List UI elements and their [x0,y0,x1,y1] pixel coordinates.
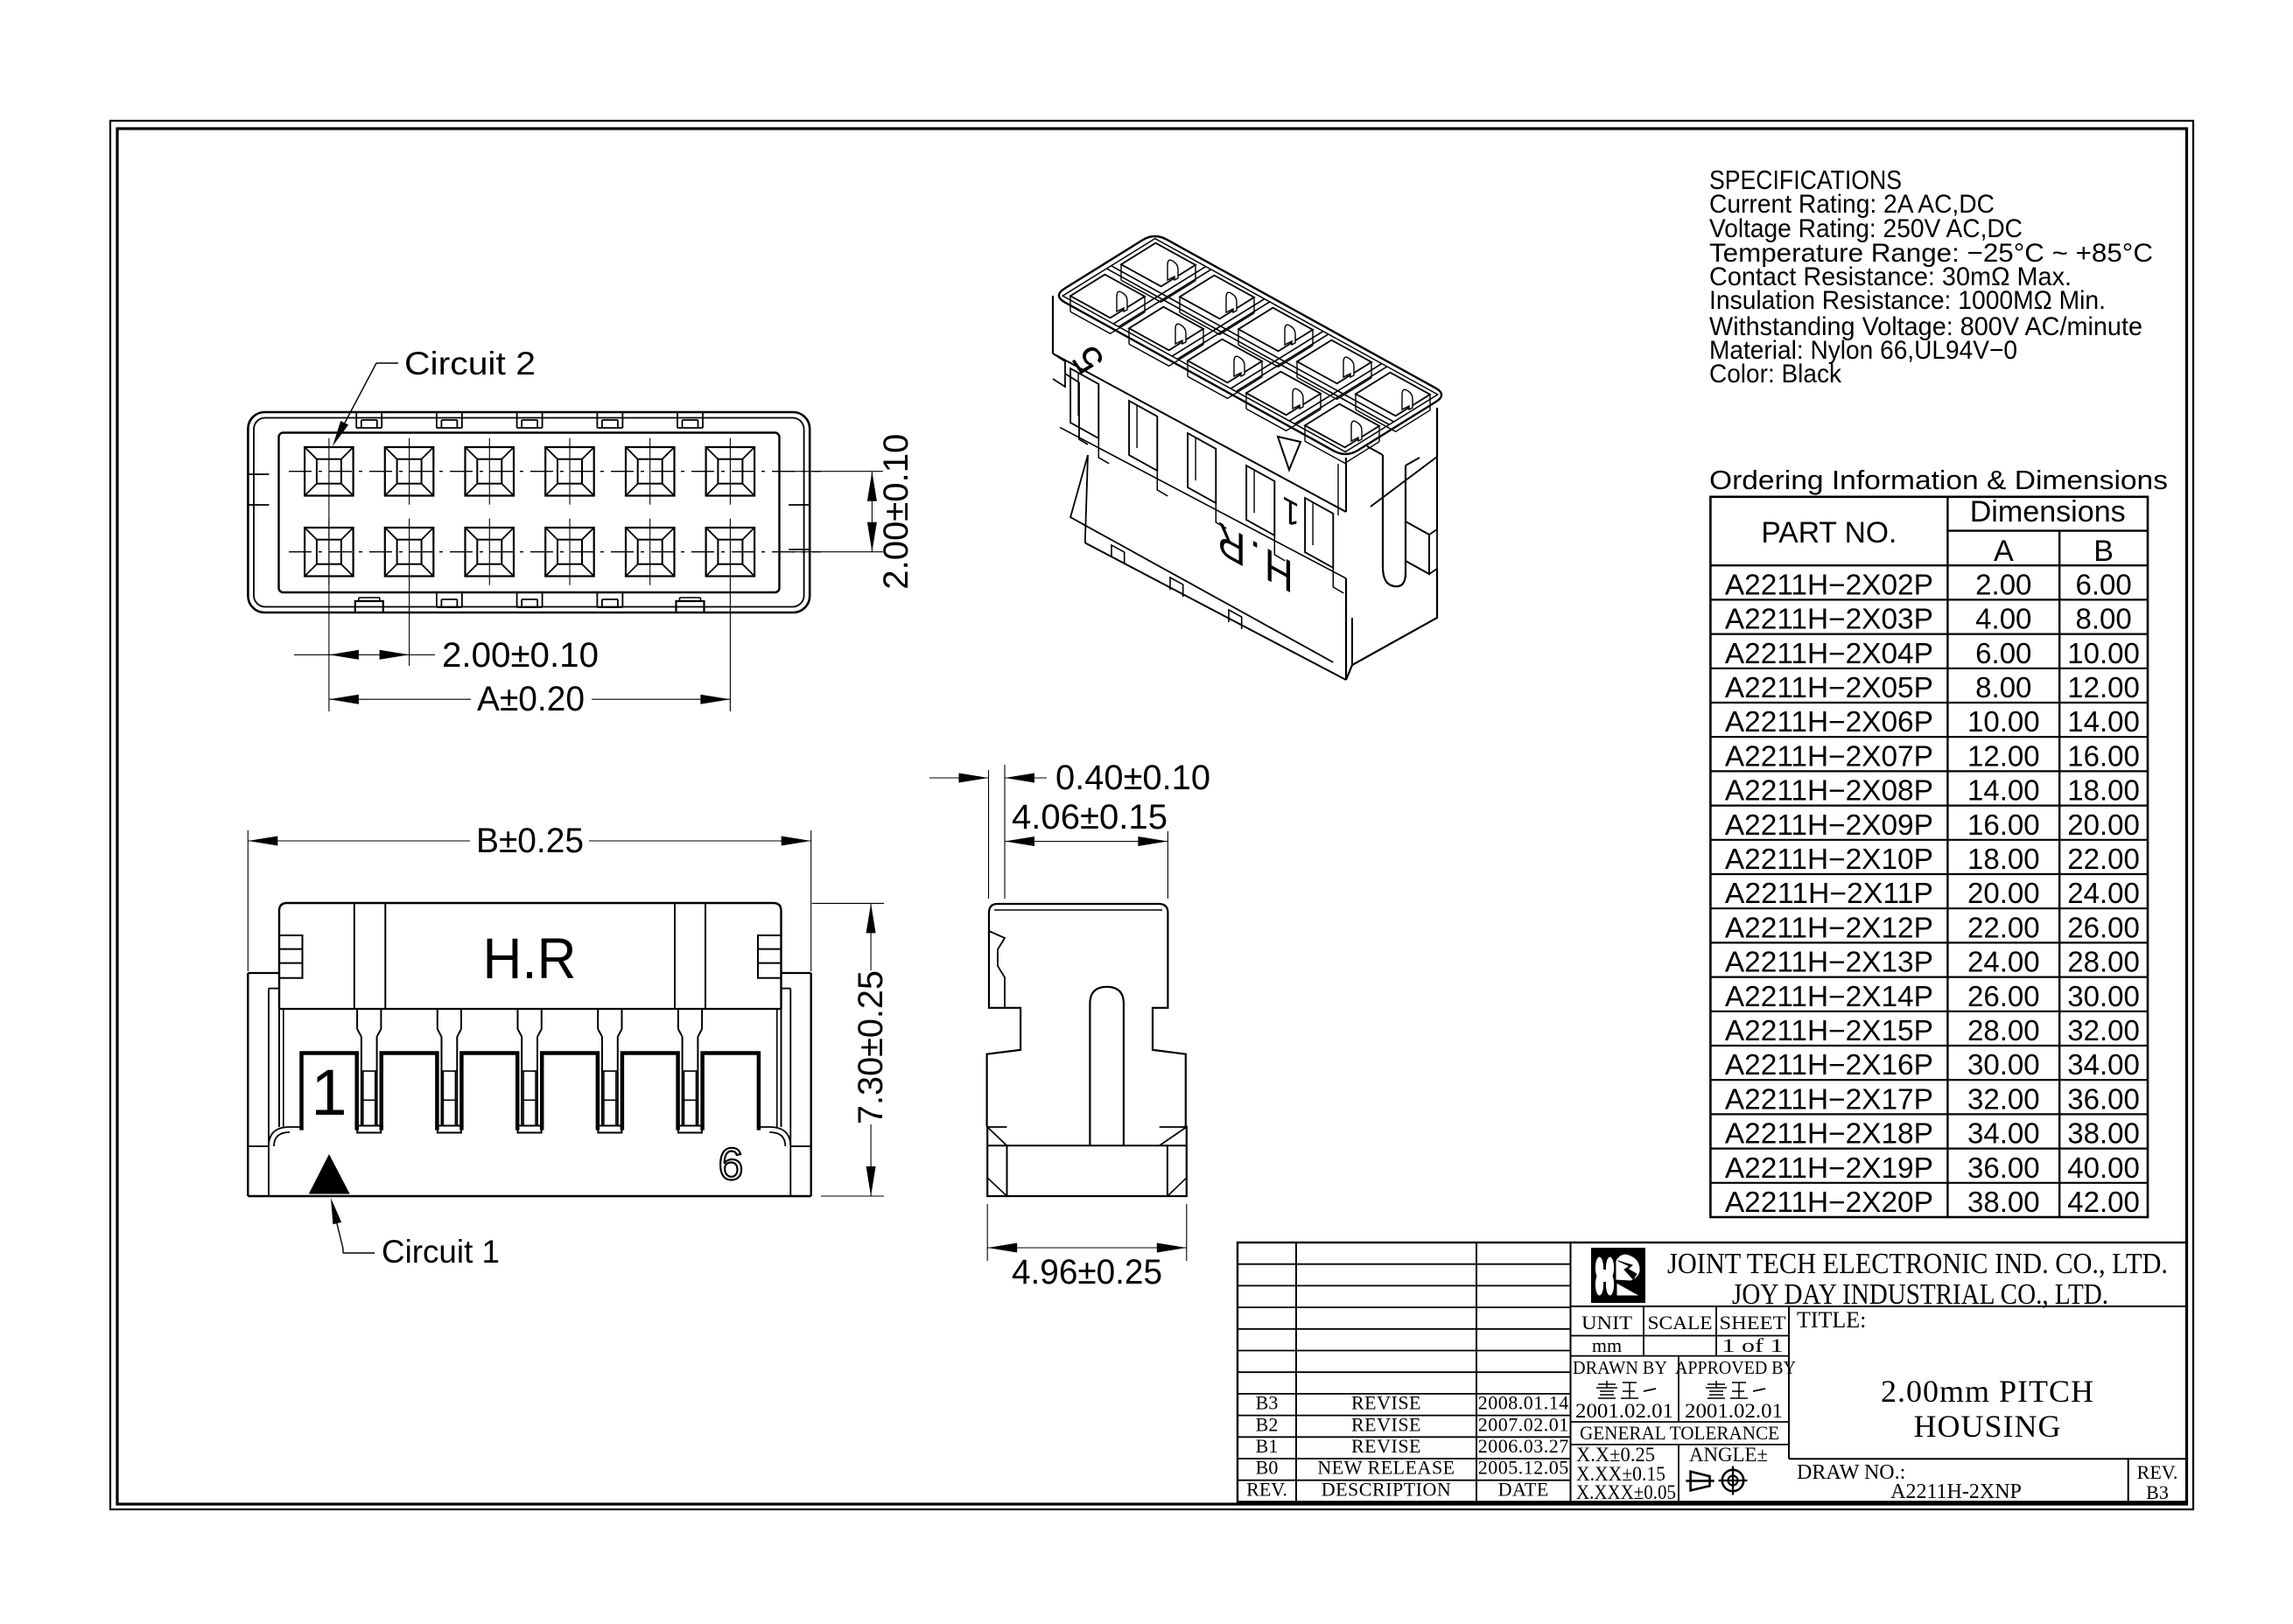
svg-text:7.30±0.25: 7.30±0.25 [852,970,890,1124]
svg-text:A2211H−2X06P: A2211H−2X06P [1725,705,1933,738]
svg-text:2.00±0.10: 2.00±0.10 [877,434,915,590]
svg-text:8.00: 8.00 [2075,603,2131,635]
svg-text:2001.02.01: 2001.02.01 [1685,1400,1783,1422]
svg-text:B3: B3 [2146,1481,2169,1503]
svg-text:4.00: 4.00 [1975,603,2031,635]
svg-text:Circuit 1: Circuit 1 [382,1234,500,1270]
svg-text:18.00: 18.00 [2067,774,2140,807]
svg-text:12.00: 12.00 [1967,739,2040,772]
svg-text:24.00: 24.00 [1967,946,2040,978]
svg-text:12.00: 12.00 [2067,671,2140,703]
svg-text:22.00: 22.00 [1967,911,2040,943]
svg-text:A2211H−2X20P: A2211H−2X20P [1725,1186,1933,1218]
svg-text:22.00: 22.00 [2067,843,2140,875]
svg-text:36.00: 36.00 [2067,1082,2140,1115]
svg-text:A2211H−2X19P: A2211H−2X19P [1725,1151,1933,1184]
svg-text:2.00: 2.00 [1975,568,2031,600]
svg-text:A2211H−2X14P: A2211H−2X14P [1725,980,1933,1012]
svg-text:2.00±0.10: 2.00±0.10 [442,636,599,675]
svg-text:DATE: DATE [1498,1478,1549,1500]
svg-text:30.00: 30.00 [1967,1048,2040,1081]
svg-text:A2211H−2X04P: A2211H−2X04P [1725,637,1933,669]
svg-text:SHEET: SHEET [1720,1312,1787,1333]
svg-text:GENERAL TOLERANCE: GENERAL TOLERANCE [1580,1422,1779,1444]
svg-text:4.96±0.25: 4.96±0.25 [1012,1253,1162,1291]
svg-text:X.XXX±0.05: X.XXX±0.05 [1576,1481,1676,1503]
svg-text:A2211H−2X16P: A2211H−2X16P [1725,1048,1933,1081]
svg-text:38.00: 38.00 [1967,1186,2040,1218]
svg-text:DRAW NO.:: DRAW NO.: [1797,1461,1905,1484]
svg-text:B3: B3 [1256,1392,1279,1414]
svg-text:36.00: 36.00 [1967,1151,2040,1184]
svg-text:A: A [1994,535,2014,568]
svg-text:26.00: 26.00 [2067,911,2140,943]
svg-text:2005.12.05: 2005.12.05 [1478,1457,1569,1479]
svg-text:H.R: H.R [483,926,577,990]
svg-text:PART NO.: PART NO. [1761,516,1897,549]
svg-text:REVISE: REVISE [1351,1413,1421,1435]
svg-text:A±0.20: A±0.20 [477,680,585,718]
svg-text:38.00: 38.00 [2067,1117,2140,1150]
svg-text:14.00: 14.00 [2067,705,2140,738]
svg-text:A2211H−2X08P: A2211H−2X08P [1725,774,1933,807]
svg-text:REV.: REV. [1246,1478,1287,1500]
svg-text:TITLE:: TITLE: [1797,1307,1866,1333]
svg-text:6.00: 6.00 [2075,568,2131,600]
svg-text:16.00: 16.00 [2067,739,2140,772]
svg-text:18.00: 18.00 [1967,843,2040,875]
svg-text:2007.02.01: 2007.02.01 [1478,1413,1569,1435]
svg-text:Insulation Resistance: 1000MΩ: Insulation Resistance: 1000MΩ Min. [1709,286,2106,315]
svg-text:Ordering Information & Dimensi: Ordering Information & Dimensions [1709,465,2168,495]
svg-text:34.00: 34.00 [1967,1117,2040,1150]
svg-text:34.00: 34.00 [2067,1048,2140,1081]
svg-text:Color: Black: Color: Black [1709,360,1842,388]
svg-text:8.00: 8.00 [1975,671,2031,703]
svg-text:B±0.25: B±0.25 [476,822,584,860]
svg-text:2006.03.27: 2006.03.27 [1478,1435,1569,1457]
svg-text:20.00: 20.00 [1967,877,2040,909]
svg-text:A2211H−2X18P: A2211H−2X18P [1725,1117,1933,1150]
svg-text:2.00mm PITCH: 2.00mm PITCH [1881,1374,2094,1409]
svg-text:30.00: 30.00 [2067,980,2140,1012]
svg-text:40.00: 40.00 [2067,1151,2140,1184]
svg-text:2008.01.14: 2008.01.14 [1478,1392,1569,1414]
svg-text:1: 1 [311,1056,347,1129]
svg-text:Dimensions: Dimensions [1970,495,2126,528]
svg-text:A2211H−2X02P: A2211H−2X02P [1725,568,1933,600]
svg-text:A2211H−2X03P: A2211H−2X03P [1725,603,1933,635]
svg-text:16.00: 16.00 [1967,808,2040,841]
svg-text:REVISE: REVISE [1351,1392,1421,1414]
svg-text:A2211H−2X10P: A2211H−2X10P [1725,843,1933,875]
svg-text:14.00: 14.00 [1967,774,2040,807]
svg-text:REV.: REV. [2137,1461,2178,1483]
svg-text:6: 6 [719,1139,744,1190]
svg-text:ANGLE±: ANGLE± [1689,1444,1768,1466]
svg-text:2001.02.01: 2001.02.01 [1575,1400,1673,1422]
svg-text:A2211H−2X11P: A2211H−2X11P [1725,877,1933,909]
svg-text:32.00: 32.00 [1967,1082,2040,1115]
svg-text:20.00: 20.00 [2067,808,2140,841]
svg-text:B2: B2 [1256,1413,1279,1435]
svg-text:0.40±0.10: 0.40±0.10 [1055,759,1210,797]
svg-text:APPROVED BY: APPROVED BY [1675,1357,1796,1378]
svg-text:A2211H−2X12P: A2211H−2X12P [1725,911,1933,943]
svg-text:26.00: 26.00 [1967,980,2040,1012]
svg-text:42.00: 42.00 [2067,1186,2140,1218]
svg-text:10.00: 10.00 [2067,637,2140,669]
svg-text:NEW RELEASE: NEW RELEASE [1317,1457,1455,1479]
svg-text:B1: B1 [1256,1435,1279,1457]
svg-text:Circuit 2: Circuit 2 [404,346,536,381]
svg-text:DESCRIPTION: DESCRIPTION [1322,1478,1452,1500]
svg-text:DRAWN BY: DRAWN BY [1573,1357,1667,1378]
svg-text:A2211H−2X17P: A2211H−2X17P [1725,1082,1933,1115]
svg-text:HOUSING: HOUSING [1914,1409,2062,1444]
svg-text:A2211H−2X05P: A2211H−2X05P [1725,671,1933,703]
svg-text:A2211H−2X07P: A2211H−2X07P [1725,739,1933,772]
svg-text:A2211H-2XNP: A2211H-2XNP [1890,1480,2022,1503]
svg-text:A2211H−2X13P: A2211H−2X13P [1725,946,1933,978]
svg-text:32.00: 32.00 [2067,1014,2140,1046]
svg-text:SCALE: SCALE [1648,1312,1713,1333]
svg-text:UNIT: UNIT [1581,1312,1633,1333]
svg-text:mm: mm [1592,1334,1622,1356]
svg-text:B0: B0 [1256,1457,1279,1479]
svg-text:10.00: 10.00 [1967,705,2040,738]
svg-text:JOINT TECH ELECTRONIC IND. CO.: JOINT TECH ELECTRONIC IND. CO., LTD. [1667,1248,2168,1280]
svg-text:REVISE: REVISE [1351,1435,1421,1457]
svg-text:A2211H−2X09P: A2211H−2X09P [1725,808,1933,841]
svg-text:28.00: 28.00 [1967,1014,2040,1046]
svg-text:4.06±0.15: 4.06±0.15 [1012,798,1168,836]
svg-text:28.00: 28.00 [2067,946,2140,978]
svg-text:6.00: 6.00 [1975,637,2031,669]
svg-text:B: B [2093,535,2114,568]
svg-text:1 of 1: 1 of 1 [1722,1334,1784,1356]
svg-text:24.00: 24.00 [2067,877,2140,909]
svg-text:A2211H−2X15P: A2211H−2X15P [1725,1014,1933,1046]
